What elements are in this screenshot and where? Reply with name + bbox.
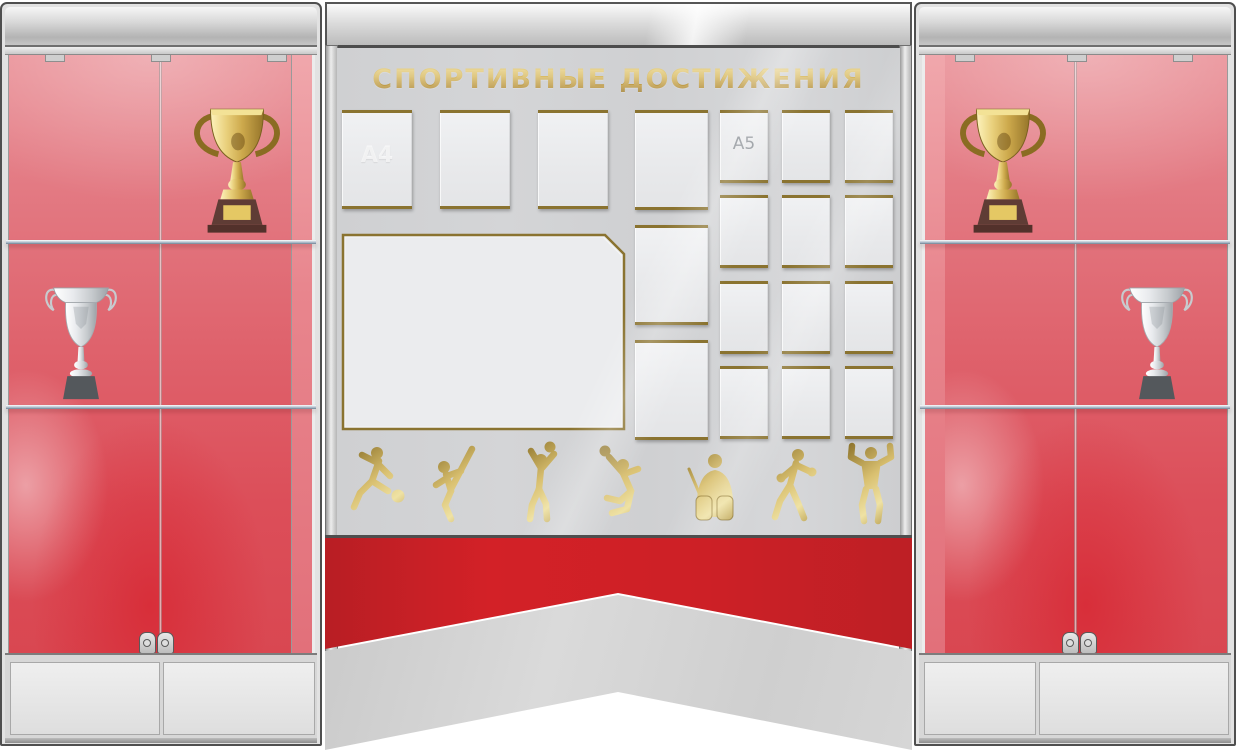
a5-pocket[interactable] — [782, 195, 830, 268]
silver-cup — [38, 282, 124, 406]
boxer-icon — [763, 441, 827, 525]
large-photo-pocket[interactable] — [341, 232, 627, 432]
cabinet-plinth — [919, 738, 1231, 743]
door-divider — [1074, 55, 1077, 653]
bodybuilder-icon — [839, 441, 900, 525]
door-hanger-tab — [1067, 55, 1087, 62]
a5-pocket[interactable] — [845, 195, 893, 268]
sports-silhouettes — [337, 441, 900, 531]
door-lock[interactable] — [1080, 632, 1097, 654]
base-panel — [1039, 662, 1229, 735]
base-panel — [10, 662, 160, 735]
a4-pocket[interactable]: A4 — [342, 110, 412, 209]
karate-kick-icon — [428, 441, 492, 525]
board-surface: СПОРТИВНЫЕ ДОСТИЖЕНИЯ — [337, 48, 900, 537]
a5-pocket[interactable] — [845, 110, 893, 183]
door-hanger-tab — [955, 55, 975, 62]
base-panel — [924, 662, 1036, 735]
hockey-goalie-icon — [683, 441, 747, 525]
a4-watermark: A4 — [342, 143, 412, 168]
silver-cup — [1114, 282, 1200, 406]
a5-pocket[interactable] — [845, 281, 893, 354]
cabinet-base — [5, 653, 317, 740]
cabinet-side-face — [922, 55, 945, 653]
cabinet-plinth — [5, 738, 317, 743]
cabinet-header-strip — [919, 47, 1231, 55]
cabinet-header-strip — [5, 47, 317, 55]
base-panel — [163, 662, 315, 735]
cabinet-header — [919, 7, 1231, 47]
board-top-bar — [325, 2, 912, 48]
door-lock[interactable] — [1062, 632, 1079, 654]
gold-trophy — [954, 94, 1052, 242]
trophy-cabinet-left — [0, 2, 322, 746]
achievements-board: СПОРТИВНЫЕ ДОСТИЖЕНИЯ — [325, 0, 912, 750]
a5-pocket[interactable] — [845, 366, 893, 439]
a5-pocket[interactable]: A5 — [720, 110, 768, 183]
sports-achievements-stand: СПОРТИВНЫЕ ДОСТИЖЕНИЯ — [0, 0, 1236, 750]
cabinet-base — [919, 653, 1231, 740]
gold-trophy — [188, 94, 286, 242]
door-divider — [159, 55, 162, 653]
a4-pocket[interactable] — [635, 110, 708, 210]
cabinet-header — [5, 7, 317, 47]
door-lock[interactable] — [157, 632, 174, 654]
cabinet-side-face — [292, 55, 315, 653]
a5-pocket[interactable] — [720, 366, 768, 439]
door-hanger-tab — [267, 55, 287, 62]
door-hanger-tab — [151, 55, 171, 62]
tennis-smash-icon — [593, 441, 657, 525]
door-hanger-tab — [1173, 55, 1193, 62]
volleyball-player-icon — [513, 441, 577, 525]
a5-pocket[interactable] — [782, 281, 830, 354]
a4-pocket[interactable] — [635, 225, 708, 325]
trophy-cabinet-right — [914, 2, 1236, 746]
a5-pocket[interactable] — [720, 195, 768, 268]
door-hanger-tab — [45, 55, 65, 62]
a4-pocket[interactable] — [635, 340, 708, 440]
soccer-player-icon — [348, 441, 412, 525]
a4-pocket[interactable] — [440, 110, 510, 209]
board-seam — [325, 535, 912, 538]
a4-pocket[interactable] — [538, 110, 608, 209]
board-title: СПОРТИВНЫЕ ДОСТИЖЕНИЯ — [337, 64, 900, 95]
a5-pocket[interactable] — [782, 366, 830, 439]
door-lock[interactable] — [139, 632, 156, 654]
a5-pocket[interactable] — [720, 281, 768, 354]
a5-watermark: A5 — [720, 134, 768, 154]
a5-pocket[interactable] — [782, 110, 830, 183]
